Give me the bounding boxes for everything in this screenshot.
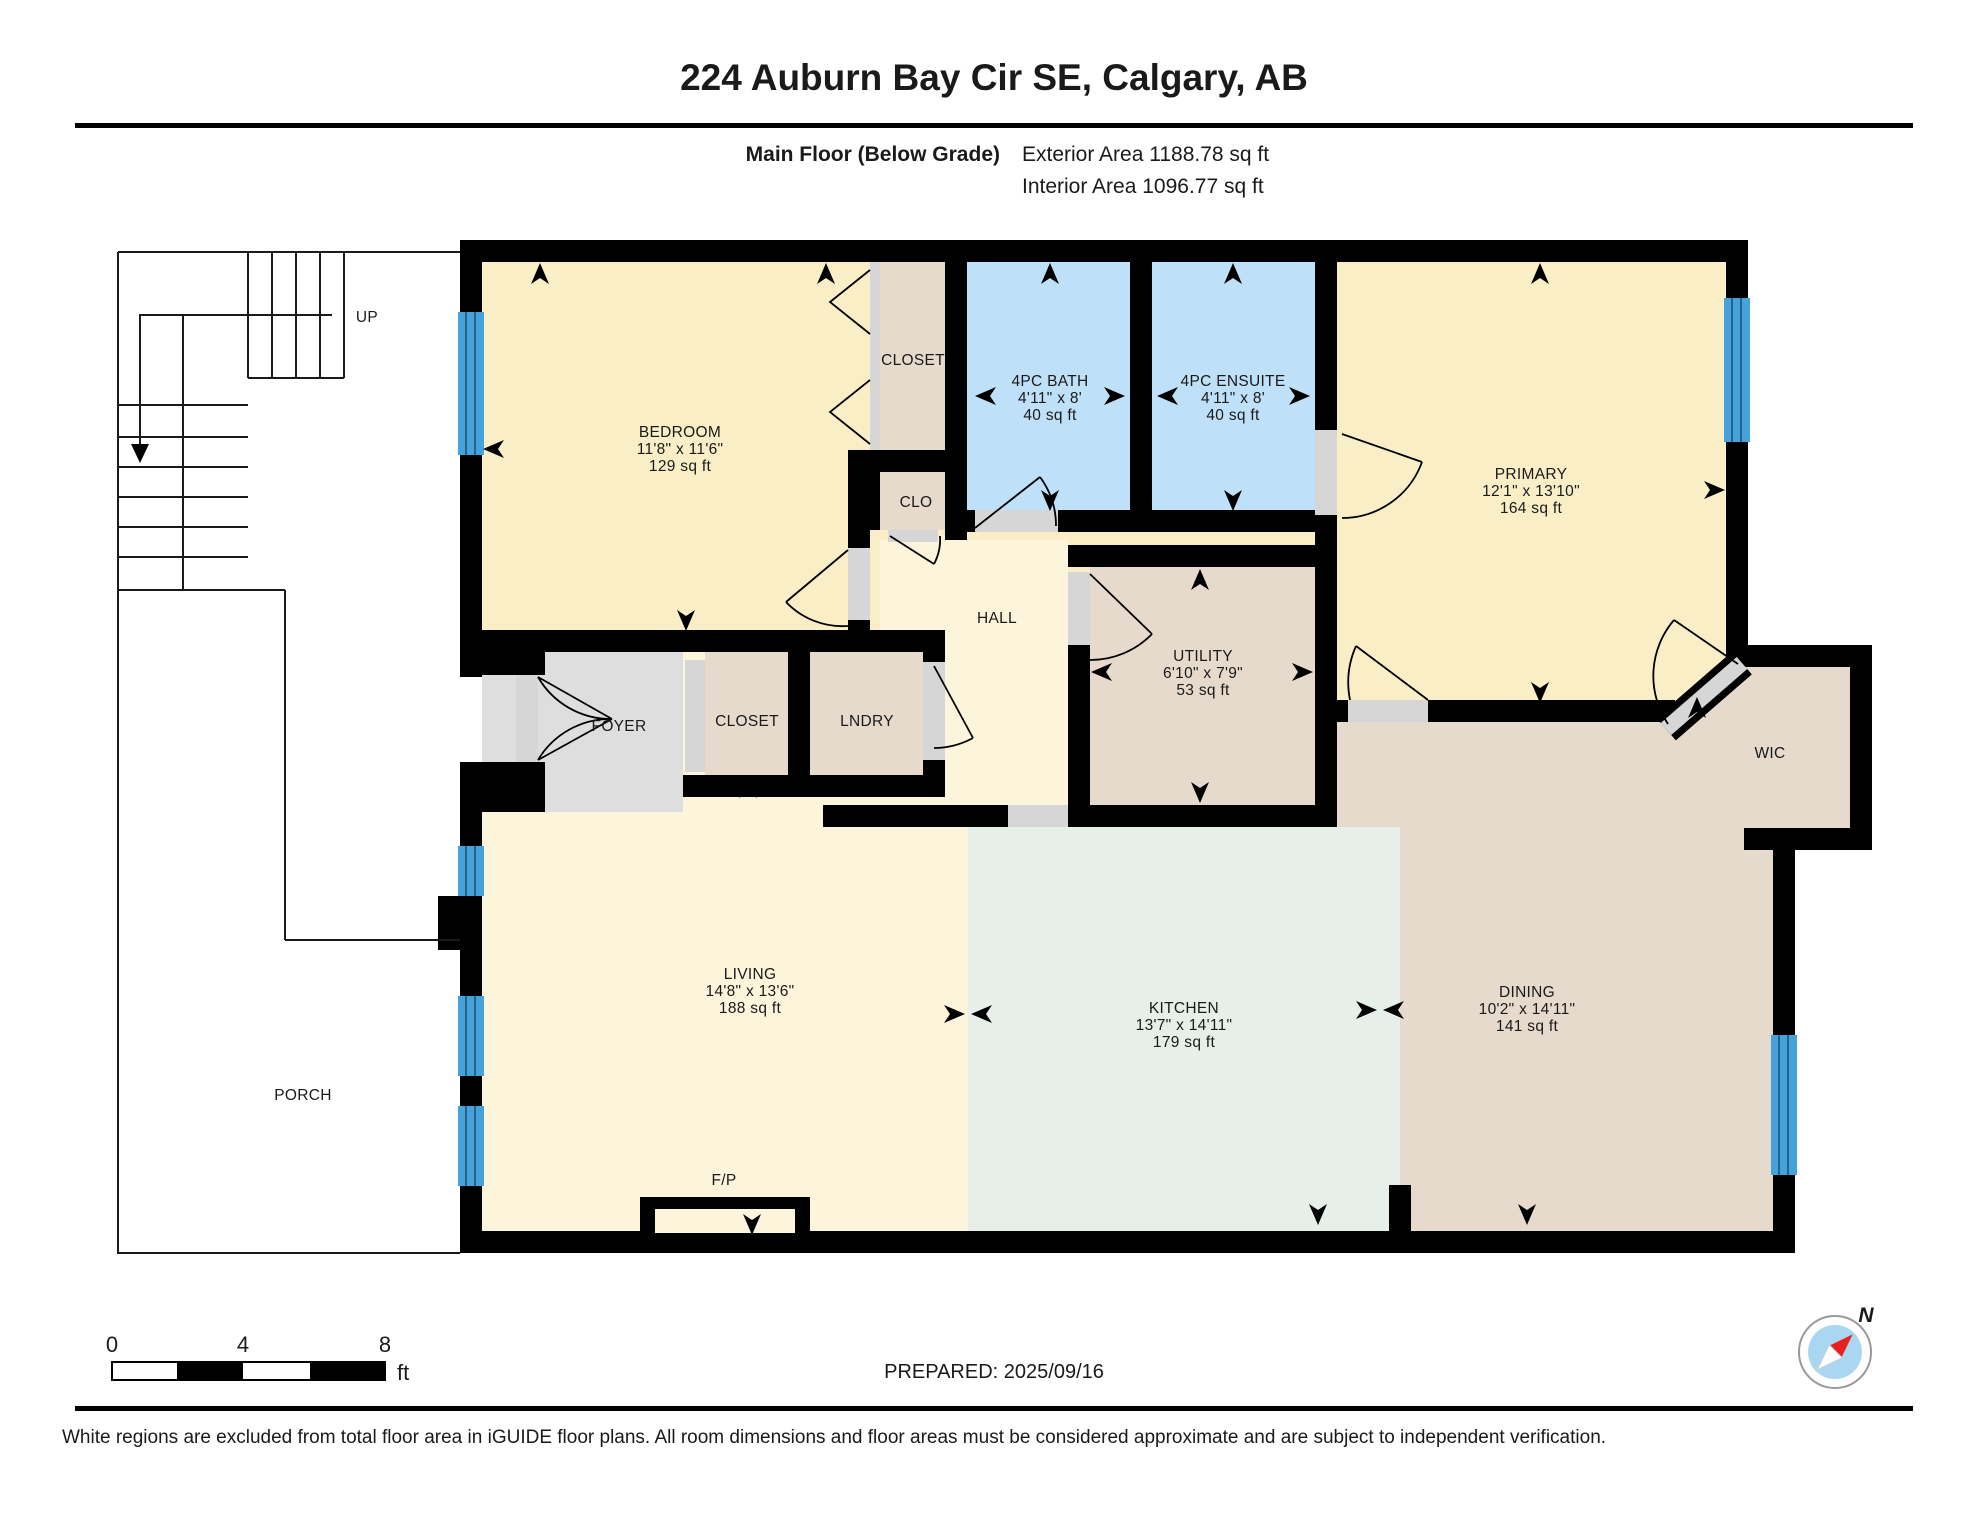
footer-rule	[75, 1406, 1913, 1411]
window	[458, 312, 484, 455]
scale-bar-segment	[310, 1362, 385, 1380]
disclaimer-text: White regions are excluded from total fl…	[62, 1427, 1606, 1448]
room-label-porch: PORCH	[274, 1087, 331, 1104]
room-area: 179 sq ft	[1153, 1034, 1216, 1051]
room-area: 188 sq ft	[719, 1000, 782, 1017]
room-name: DINING	[1499, 984, 1555, 1001]
stairs-up-label: UP	[356, 309, 378, 326]
header-rule	[75, 123, 1913, 128]
compass-north-label: N	[1858, 1304, 1874, 1327]
scale-unit: ft	[397, 1360, 409, 1385]
room-label-bedroom: BEDROOM 11'8" x 11'6" 129 sq ft	[637, 424, 724, 475]
page-title: 224 Auburn Bay Cir SE, Calgary, AB	[680, 57, 1308, 98]
interior-area: Interior Area 1096.77 sq ft	[1022, 175, 1264, 198]
window	[1724, 298, 1750, 442]
room-dims: 4'11" x 8'	[1018, 390, 1082, 407]
floor-label: Main Floor (Below Grade)	[746, 143, 1000, 166]
window	[458, 996, 484, 1076]
room-area: 40 sq ft	[1206, 407, 1260, 424]
compass-icon: N	[1799, 1304, 1874, 1388]
room-dims: 6'10" x 7'9"	[1163, 665, 1243, 682]
room-dims: 10'2" x 14'11"	[1479, 1001, 1576, 1018]
room-dims: 11'8" x 11'6"	[637, 441, 724, 458]
window	[458, 1106, 484, 1186]
room-name: PRIMARY	[1495, 466, 1567, 483]
room-label-closet-top: CLOSET	[881, 352, 945, 369]
room-label-hall: HALL	[977, 610, 1017, 627]
room-area: 53 sq ft	[1176, 682, 1230, 699]
room-name: 4PC ENSUITE	[1181, 373, 1286, 390]
stairs-direction-arrow	[131, 444, 149, 463]
floor-plan-page: 224 Auburn Bay Cir SE, Calgary, AB Main …	[0, 0, 1988, 1536]
room-dims: 13'7" x 14'11"	[1136, 1017, 1233, 1034]
room-area: 40 sq ft	[1023, 407, 1077, 424]
window	[1771, 1035, 1797, 1175]
room-dims: 14'8" x 13'6"	[706, 983, 795, 1000]
prepared-date: PREPARED: 2025/09/16	[884, 1361, 1104, 1383]
scale-bar-segment	[177, 1362, 243, 1380]
room-label-clo: CLO	[900, 494, 933, 511]
room-label-wic: WIC	[1754, 745, 1785, 762]
room-name: LIVING	[724, 966, 777, 983]
room-name: UTILITY	[1173, 648, 1233, 665]
room-dims: 12'1" x 13'10"	[1482, 483, 1580, 500]
room-name: 4PC BATH	[1011, 373, 1088, 390]
scale-bar: 0 4 8 ft	[106, 1332, 409, 1385]
window	[458, 846, 484, 896]
room-dims: 4'11" x 8'	[1201, 390, 1265, 407]
scale-tick-4: 4	[237, 1332, 249, 1357]
floor-plan-canvas: 224 Auburn Bay Cir SE, Calgary, AB Main …	[0, 0, 1988, 1536]
room-area: 129 sq ft	[649, 458, 712, 475]
room-area: 141 sq ft	[1496, 1018, 1559, 1035]
room-label-foyer: FOYER	[592, 718, 647, 735]
room-area: 164 sq ft	[1500, 500, 1563, 517]
exterior-area: Exterior Area 1188.78 sq ft	[1022, 143, 1269, 166]
room-name: BEDROOM	[639, 424, 721, 441]
room-label-closet-mid: CLOSET	[715, 713, 779, 730]
fireplace-label: F/P	[711, 1172, 736, 1189]
scale-tick-0: 0	[106, 1332, 118, 1357]
room-label-lndry: LNDRY	[840, 713, 894, 730]
fireplace	[640, 1197, 810, 1237]
scale-tick-8: 8	[379, 1332, 391, 1357]
room-name: KITCHEN	[1149, 1000, 1219, 1017]
